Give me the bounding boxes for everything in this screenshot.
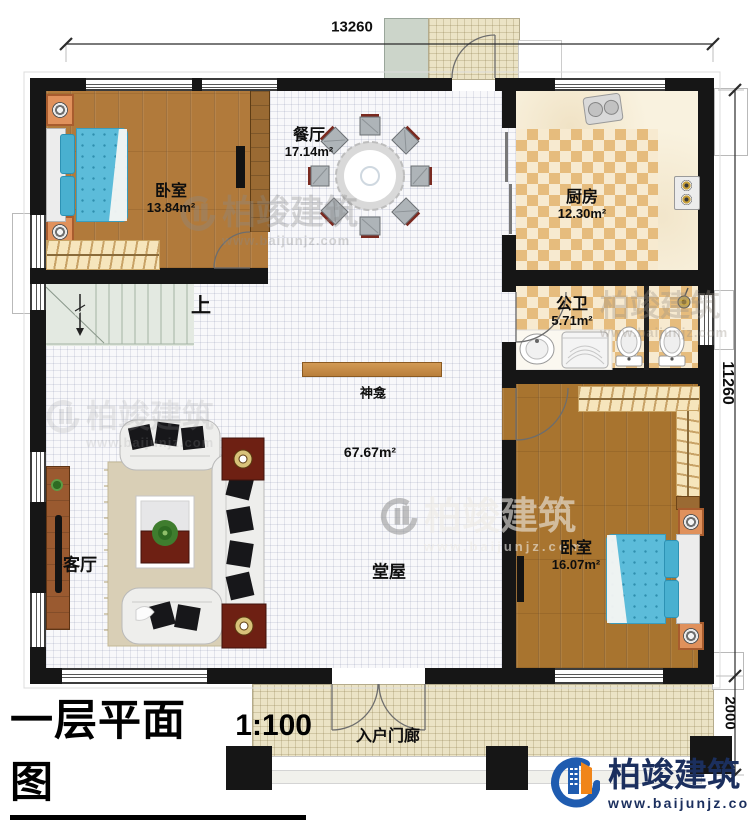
window-sill-top-right xyxy=(714,88,748,156)
bedroom1-dining-wall xyxy=(250,91,270,232)
plan-title: 一层平面图 xyxy=(10,686,219,810)
room-name: 餐厅 xyxy=(285,127,333,145)
wardrobe-icon xyxy=(578,386,700,412)
wall xyxy=(502,440,516,668)
burner xyxy=(681,194,692,205)
wall xyxy=(192,78,202,91)
sofa-icon xyxy=(122,588,222,644)
pillow-icon xyxy=(60,134,75,174)
bedroom2-door-threshold xyxy=(502,388,516,440)
wardrobe-icon xyxy=(46,240,160,270)
nightstand-icon xyxy=(678,622,704,650)
brand-lockup: 柏竣建筑 www.baijunjz.com xyxy=(548,756,750,812)
wall xyxy=(30,268,268,284)
window xyxy=(698,295,714,345)
room-label-hall: 堂屋 xyxy=(372,562,406,581)
side-table-icon xyxy=(222,438,264,480)
wardrobe-icon xyxy=(676,410,700,498)
wall xyxy=(30,78,46,215)
kitchen-sink-icon xyxy=(582,92,624,125)
room-area: 16.07m² xyxy=(552,558,600,573)
pillow-icon xyxy=(60,176,75,216)
wall xyxy=(495,78,555,91)
wall xyxy=(30,310,46,452)
sink-basin xyxy=(587,101,604,118)
window xyxy=(30,452,46,502)
wall xyxy=(277,78,452,91)
shrine-shelf-icon xyxy=(302,362,442,377)
wall xyxy=(502,270,714,286)
wall xyxy=(502,286,516,292)
washer-icon xyxy=(562,332,608,368)
closet-rail xyxy=(47,254,159,256)
nightstand-icon xyxy=(46,94,74,126)
window xyxy=(62,668,207,684)
staircase xyxy=(46,284,194,346)
room-label-living: 客厅 xyxy=(63,555,97,574)
closet-rail xyxy=(579,398,699,400)
title-block: 一层平面图 1:100 本层建筑面积：159.28m² 本栋建筑面积：294.2… xyxy=(10,686,312,832)
bed-icon xyxy=(606,534,666,624)
room-name: 公卫 xyxy=(551,296,592,314)
bed-icon xyxy=(76,128,128,222)
room-label-bedroom1: 卧室 13.84m² xyxy=(147,183,195,215)
rear-porch-floor xyxy=(428,18,520,80)
lamp-icon xyxy=(683,628,699,644)
dining-table-icon xyxy=(298,104,442,248)
entry-porch-floor xyxy=(252,684,714,758)
hall-area-label: 67.67m² xyxy=(344,445,396,461)
wall xyxy=(502,342,516,384)
sofa-icon xyxy=(120,420,220,470)
sliding-door xyxy=(505,132,508,182)
wall xyxy=(698,91,714,295)
wall xyxy=(30,502,46,593)
dimension-label-top: 13260 xyxy=(331,20,373,37)
room-area: 13.84m² xyxy=(147,201,195,216)
porch-column xyxy=(486,746,528,790)
room-label-dining: 餐厅 17.14m² xyxy=(285,127,333,159)
window xyxy=(30,593,46,647)
wall xyxy=(665,78,714,91)
room-label-kitchen: 厨房 12.30m² xyxy=(558,189,606,221)
bathroom-fixtures xyxy=(516,286,698,370)
tv-cabinet-icon xyxy=(46,466,70,630)
room-name: 卧室 xyxy=(552,540,600,558)
room-area: 17.14m² xyxy=(285,145,333,160)
tv-icon xyxy=(55,515,62,593)
room-label-entry-porch: 入户门廊 xyxy=(356,728,420,746)
shrine-label: 神龛 xyxy=(360,387,386,402)
window xyxy=(555,668,663,684)
pillow-icon xyxy=(664,580,679,618)
room-area: 12.30m² xyxy=(558,207,606,222)
shower-head-icon xyxy=(678,288,690,308)
tv-icon xyxy=(517,556,524,602)
window xyxy=(86,78,192,91)
bed-headboard-icon xyxy=(676,534,700,624)
room-name: 厨房 xyxy=(558,189,606,207)
bed-sheet xyxy=(607,535,627,623)
room-name: 卧室 xyxy=(147,183,195,201)
wall xyxy=(502,91,516,128)
staircase-treads-icon xyxy=(46,284,194,346)
room-label-bathroom: 公卫 5.71m² xyxy=(551,296,592,328)
burner xyxy=(681,180,692,191)
lamp-icon xyxy=(683,514,699,530)
plan-scale: 1:100 xyxy=(235,709,312,743)
bath-divider-wall xyxy=(644,286,649,370)
brand-website: www.baijunjz.com xyxy=(608,795,750,811)
plant-icon xyxy=(51,479,63,491)
wall xyxy=(502,235,516,286)
sliding-door xyxy=(509,184,512,234)
window xyxy=(555,78,665,91)
bedroom1-door-threshold xyxy=(250,232,268,268)
rear-porch-slab xyxy=(384,18,432,80)
window xyxy=(30,215,46,310)
stairs-up-label: 上 xyxy=(191,295,211,317)
coffee-table-icon xyxy=(136,496,194,568)
wall xyxy=(502,368,714,384)
lamp-icon xyxy=(52,102,68,118)
side-table-icon xyxy=(222,604,266,648)
dimension-label-porch: 2000 xyxy=(721,696,738,729)
toilet-icon xyxy=(659,327,685,366)
lamp-icon xyxy=(52,224,68,240)
pillow-icon xyxy=(664,540,679,578)
window-sill-bathroom xyxy=(714,290,734,350)
window xyxy=(202,78,277,91)
sofa-set xyxy=(100,412,270,652)
stove-icon xyxy=(674,176,700,210)
sink-basin xyxy=(603,99,620,116)
wall xyxy=(425,668,555,684)
room-label-bedroom2: 卧室 16.07m² xyxy=(552,540,600,572)
toilet-icon xyxy=(616,327,642,366)
nightstand-icon xyxy=(678,508,704,536)
wall xyxy=(502,384,516,388)
brand-name: 柏竣建筑 xyxy=(608,758,750,791)
wall xyxy=(30,668,62,684)
dimension-label-right: 11260 xyxy=(718,361,736,405)
bedroom2-floor xyxy=(516,384,698,668)
room-area: 5.71m² xyxy=(551,314,592,329)
window-sill-bottom-right xyxy=(712,652,744,690)
floor-plan-canvas: 柏竣建筑 www.baijunjz.com 柏竣建筑 www.baijunjz.… xyxy=(0,0,750,832)
rear-landing xyxy=(518,40,562,80)
title-underline xyxy=(10,815,306,820)
brand-logo-icon xyxy=(548,756,600,812)
closet-rail xyxy=(687,411,689,497)
tv-icon xyxy=(236,146,245,188)
wall xyxy=(207,668,332,684)
bed-sheet xyxy=(109,129,127,221)
